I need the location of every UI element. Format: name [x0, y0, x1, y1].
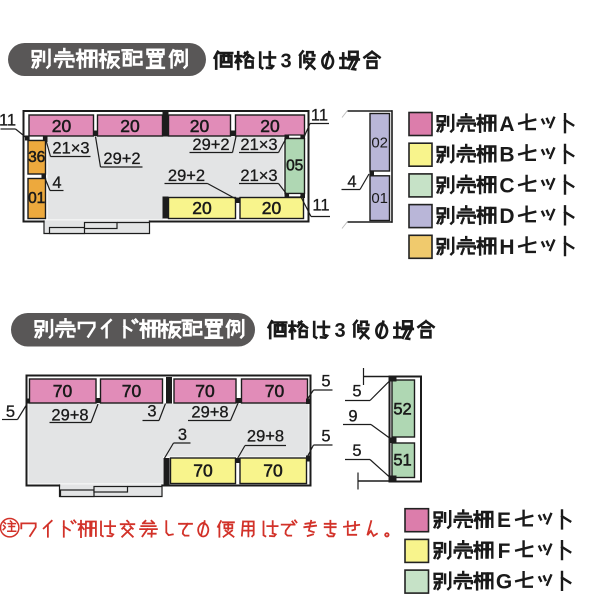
- svg-text:29+8: 29+8: [247, 428, 284, 446]
- svg-text:3: 3: [178, 426, 187, 444]
- svg-text:9: 9: [348, 408, 357, 426]
- svg-text:D: D: [499, 205, 514, 228]
- svg-text:52: 52: [393, 401, 411, 419]
- svg-text:21×3: 21×3: [240, 136, 277, 154]
- svg-text:70: 70: [265, 381, 285, 401]
- svg-text:20: 20: [52, 116, 72, 136]
- svg-text:11: 11: [311, 107, 328, 125]
- svg-text:29+8: 29+8: [51, 407, 88, 425]
- svg-text:70: 70: [193, 461, 213, 481]
- svg-text:4: 4: [52, 174, 61, 192]
- svg-text:21×3: 21×3: [240, 167, 277, 185]
- svg-text:70: 70: [53, 381, 73, 401]
- svg-text:36: 36: [28, 149, 45, 166]
- svg-text:70: 70: [195, 381, 215, 401]
- svg-text:3: 3: [147, 403, 156, 421]
- svg-text:H: H: [499, 236, 514, 259]
- svg-text:5: 5: [321, 428, 330, 446]
- svg-text:5: 5: [352, 383, 361, 401]
- svg-text:29+8: 29+8: [191, 404, 228, 422]
- svg-text:5: 5: [6, 403, 15, 421]
- svg-text:20: 20: [260, 116, 280, 136]
- svg-text:05: 05: [286, 158, 303, 175]
- svg-text:A: A: [499, 113, 514, 136]
- svg-text:3: 3: [334, 320, 345, 342]
- svg-text:70: 70: [263, 461, 283, 481]
- svg-text:20: 20: [120, 116, 140, 136]
- svg-text:29+2: 29+2: [192, 136, 229, 154]
- svg-text:51: 51: [393, 452, 411, 470]
- svg-text:70: 70: [122, 381, 142, 401]
- svg-text:11: 11: [312, 197, 329, 215]
- svg-text:B: B: [499, 144, 514, 167]
- svg-text:G: G: [496, 571, 512, 594]
- svg-text:20: 20: [192, 198, 212, 218]
- svg-text:29+2: 29+2: [168, 167, 205, 185]
- svg-text:01: 01: [371, 190, 388, 207]
- svg-text:5: 5: [321, 373, 330, 391]
- svg-text:11: 11: [0, 112, 16, 130]
- svg-text:3: 3: [280, 51, 291, 73]
- svg-text:E: E: [497, 509, 511, 532]
- svg-text:C: C: [499, 174, 514, 197]
- svg-text:02: 02: [371, 135, 388, 152]
- svg-text:21×3: 21×3: [52, 140, 89, 158]
- svg-text:F: F: [498, 540, 511, 563]
- svg-text:29+2: 29+2: [103, 150, 140, 168]
- svg-text:4: 4: [347, 173, 356, 191]
- svg-text:20: 20: [190, 116, 210, 136]
- svg-text:5: 5: [352, 442, 361, 460]
- svg-text:20: 20: [262, 198, 282, 218]
- svg-text:01: 01: [28, 190, 45, 207]
